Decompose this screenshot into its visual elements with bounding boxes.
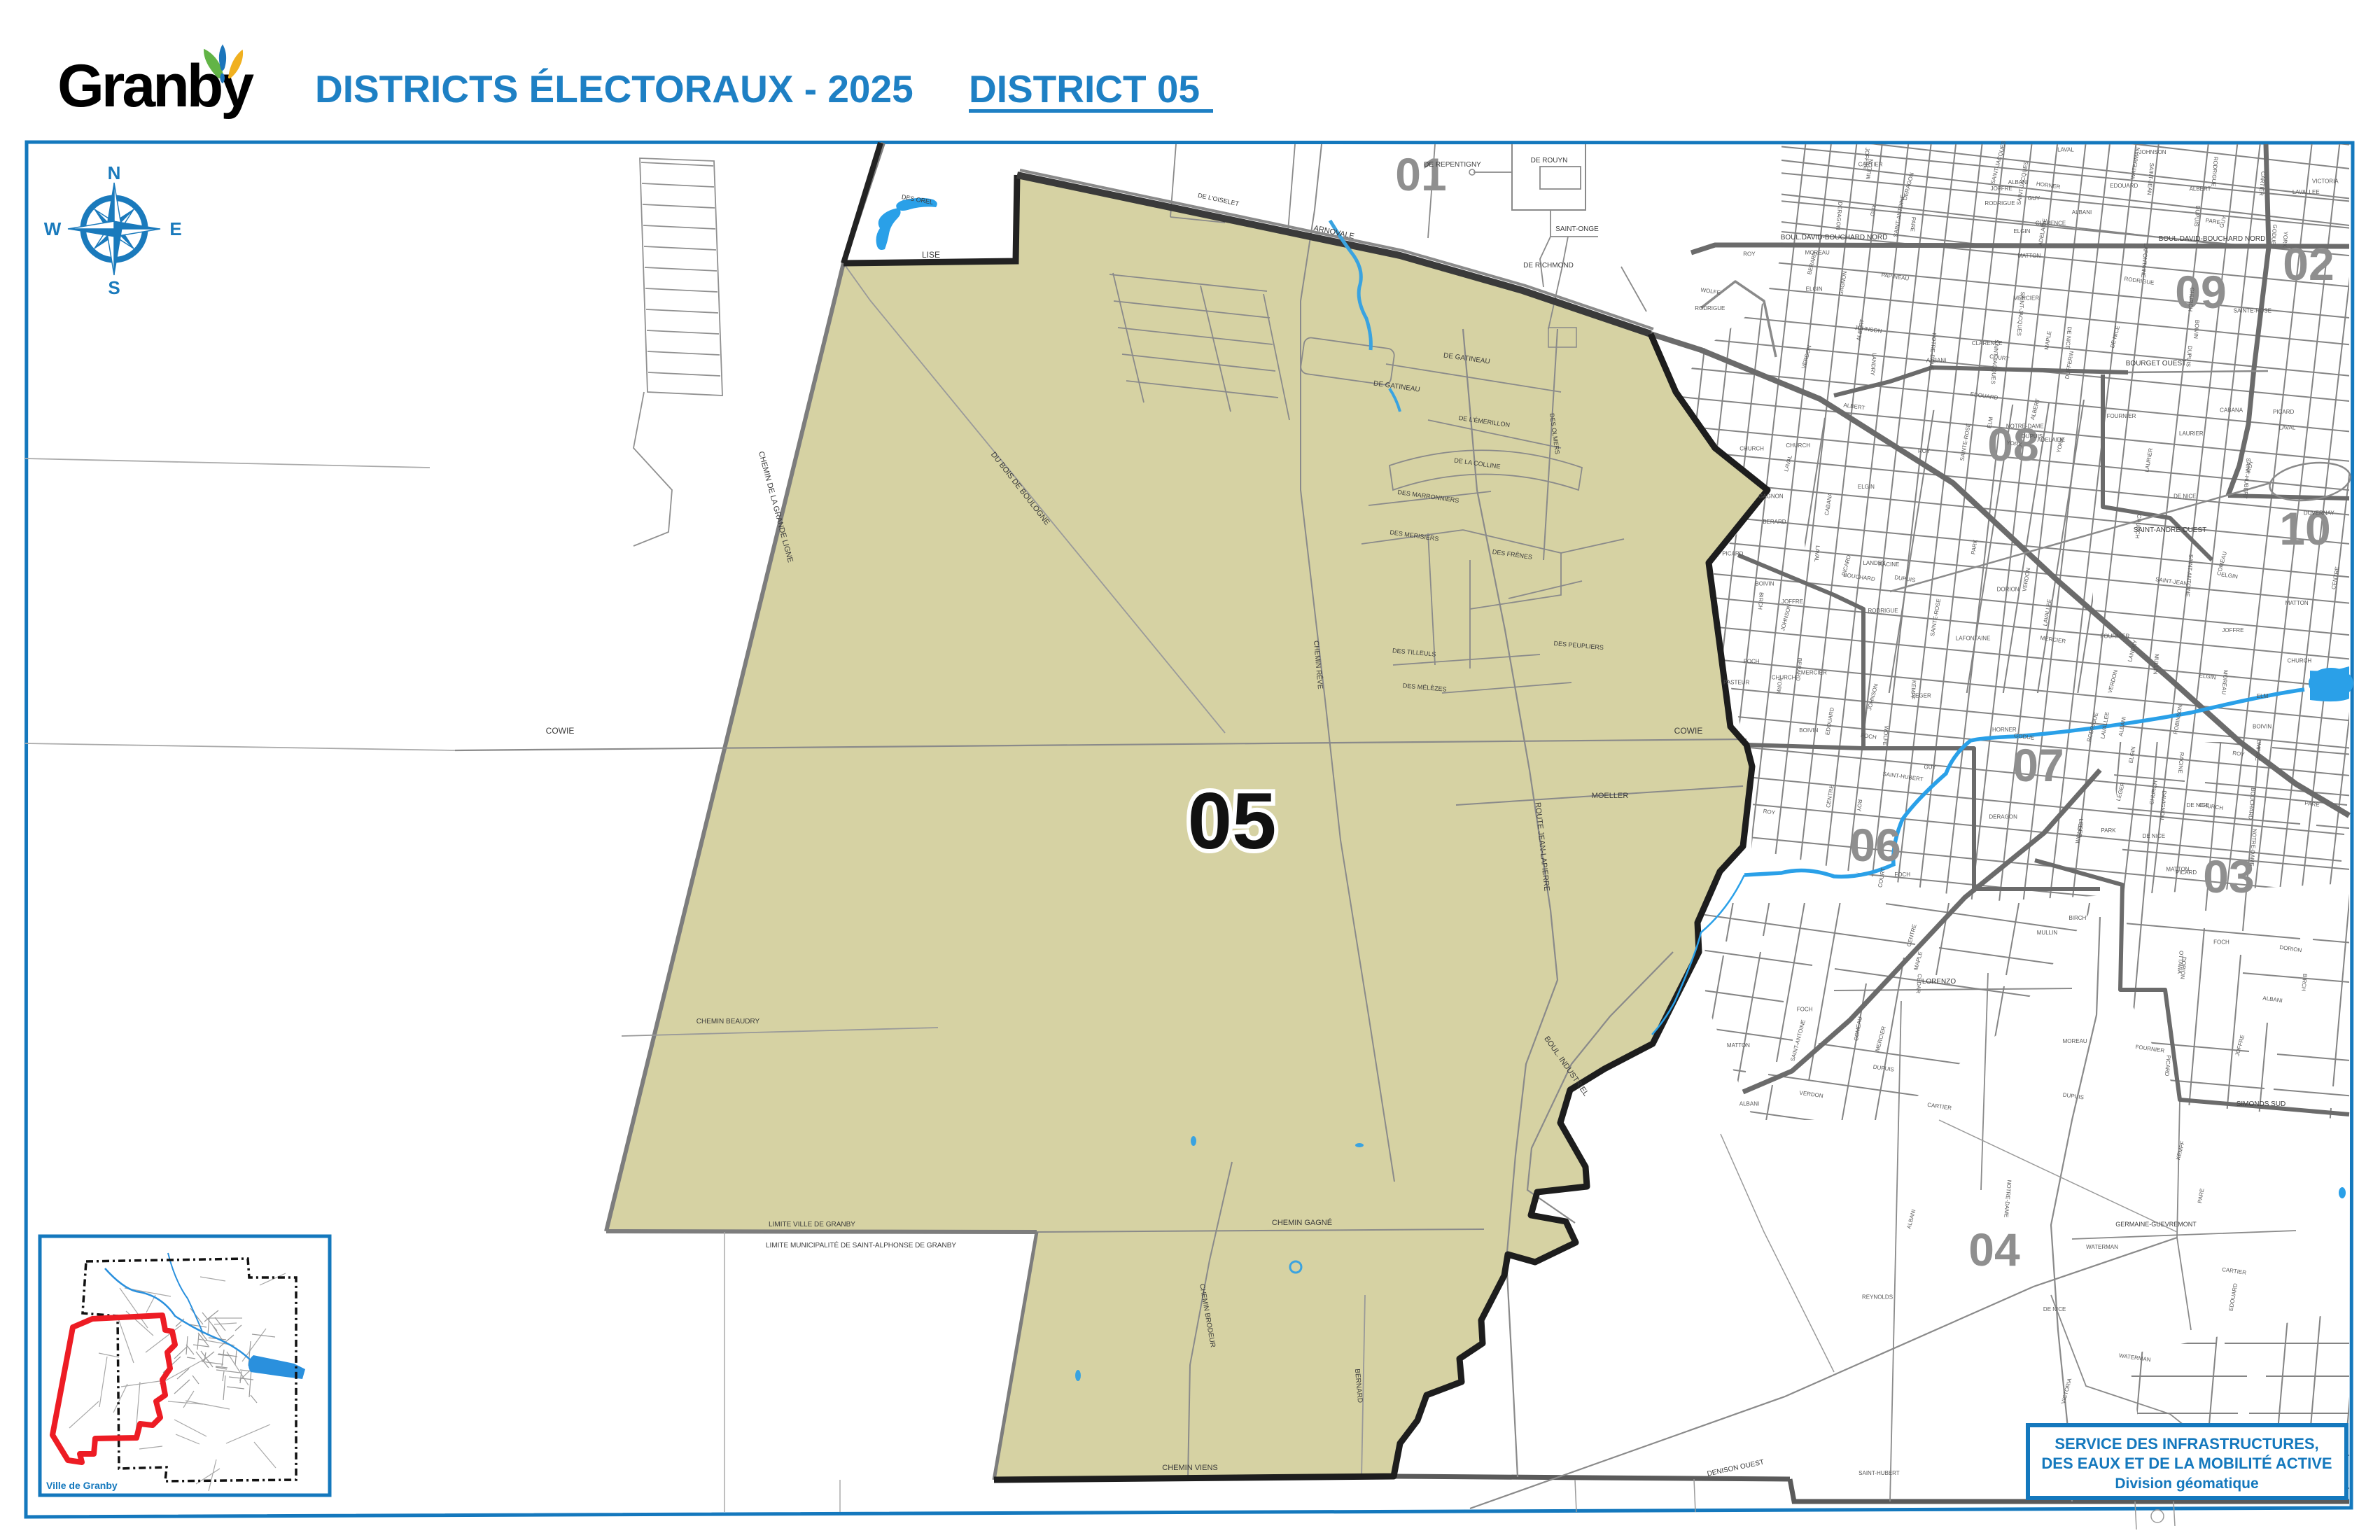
svg-text:PICARD: PICARD [2273,409,2294,415]
svg-text:ALBANI: ALBANI [2008,179,2028,185]
svg-text:SAINT-ANDRÉ OUEST: SAINT-ANDRÉ OUEST [2134,525,2206,534]
svg-text:RODRIGUE: RODRIGUE [1695,305,1725,311]
svg-text:PARE: PARE [1910,216,1917,232]
svg-text:MOELLER: MOELLER [1592,792,1629,800]
svg-text:LORENZO: LORENZO [1922,978,1956,986]
svg-text:RODRIGUE: RODRIGUE [1984,200,2015,206]
svg-text:MULLIN: MULLIN [2037,930,2058,936]
svg-text:MATTON: MATTON [2285,600,2309,606]
svg-text:CHURCH: CHURCH [2288,658,2312,664]
svg-text:BERARD: BERARD [1763,519,1786,525]
svg-text:COWIE: COWIE [1674,726,1703,736]
svg-text:PICARD: PICARD [2176,869,2197,876]
svg-text:NOTRE-DAME: NOTRE-DAME [2006,423,2044,430]
svg-text:BOIVIN: BOIVIN [1755,580,1774,587]
svg-text:CLARENCE: CLARENCE [1972,340,2003,346]
svg-text:W: W [44,218,62,239]
svg-text:MATTON: MATTON [2017,253,2040,259]
svg-text:DE NICE: DE NICE [2187,802,2209,808]
svg-text:WATERMAN: WATERMAN [2086,1244,2118,1250]
svg-text:S: S [108,277,120,298]
svg-text:CHURCH: CHURCH [1739,445,1764,451]
svg-text:FOURNIER: FOURNIER [2107,413,2136,419]
svg-text:09: 09 [2175,266,2226,318]
svg-text:PICARD: PICARD [1722,550,1743,556]
svg-text:SAINT-ONGE: SAINT-ONGE [1555,225,1599,233]
svg-text:04: 04 [1968,1224,2020,1275]
svg-text:LIMITE MUNICIPALITÉ DE SAINT-A: LIMITE MUNICIPALITÉ DE SAINT-ALPHONSE DE… [766,1240,956,1249]
svg-text:FOCH: FOCH [1894,871,1910,878]
svg-text:FOCH: FOCH [2213,939,2229,945]
svg-text:SAINT-HUBERT: SAINT-HUBERT [1858,1470,1900,1476]
svg-text:ELM: ELM [2257,693,2269,699]
svg-text:BIRCH: BIRCH [2068,915,2086,921]
svg-text:LISE: LISE [922,250,940,260]
svg-text:05: 05 [1188,777,1277,866]
svg-text:LAVAL: LAVAL [2279,425,2296,431]
svg-text:SIMONDS SUD: SIMONDS SUD [2236,1100,2286,1108]
svg-text:DISTRICT 05: DISTRICT 05 [969,67,1200,111]
svg-text:BOUL.DAVID-BOUCHARD NORD: BOUL.DAVID-BOUCHARD NORD [2159,235,2266,243]
svg-text:RODRIGUE: RODRIGUE [1868,608,1898,614]
svg-text:ALBANI: ALBANI [1739,1101,1759,1107]
svg-text:DE NICE: DE NICE [2043,1306,2066,1312]
svg-text:Division géomatique: Division géomatique [2115,1476,2258,1492]
svg-text:02: 02 [2283,238,2334,290]
svg-text:01: 01 [1395,148,1446,200]
svg-text:ELGIN: ELGIN [2013,228,2030,234]
svg-text:DUVERNAY: DUVERNAY [2304,510,2335,516]
svg-text:GUY: GUY [2028,195,2040,202]
svg-text:COWIE: COWIE [546,726,575,736]
svg-text:HORNER: HORNER [1992,727,2017,733]
svg-text:SERVICE DES INFRASTRUCTURES,: SERVICE DES INFRASTRUCTURES, [2054,1435,2318,1452]
svg-text:CLARENCE: CLARENCE [2036,220,2066,227]
svg-text:CHURCH: CHURCH [1786,442,1810,449]
svg-text:CHURCH: CHURCH [1772,674,1796,680]
svg-text:GUY: GUY [1924,764,1936,771]
svg-text:JOFFRE: JOFFRE [2222,627,2243,633]
svg-text:LAURIER: LAURIER [2179,430,2204,437]
svg-text:DORION: DORION [1997,587,2019,593]
svg-text:JOHNSON: JOHNSON [2138,149,2166,155]
svg-text:CHEMIN VIENS: CHEMIN VIENS [1162,1464,1217,1472]
svg-text:CABANA: CABANA [2220,407,2243,413]
svg-text:BOUL.DAVID-BOUCHARD NORD: BOUL.DAVID-BOUCHARD NORD [1781,234,1888,241]
svg-text:ROY: ROY [1743,251,1756,257]
svg-text:ALBANI: ALBANI [1926,357,1946,363]
svg-text:MERCIER: MERCIER [1801,669,1827,675]
svg-text:MERCIER: MERCIER [2013,295,2039,301]
svg-text:DE RICHMOND: DE RICHMOND [1523,262,1574,269]
svg-text:LAVALLEE: LAVALLEE [2292,189,2320,195]
svg-text:DE REPENTIGNY: DE REPENTIGNY [1424,161,1481,169]
svg-text:03: 03 [2203,850,2254,902]
svg-text:BOIVIN: BOIVIN [1799,727,1818,734]
svg-text:BOURGET OUEST: BOURGET OUEST [2126,360,2187,367]
svg-text:DE ROUYN: DE ROUYN [1531,157,1568,164]
svg-text:PARK: PARK [2101,827,2116,834]
svg-text:FOCH: FOCH [1744,658,1760,664]
svg-text:DERAGON: DERAGON [1989,813,2017,820]
svg-text:ROY: ROY [1856,799,1863,813]
svg-text:DES EAUX ET DE LA MOBILITÉ ACT: DES EAUX ET DE LA MOBILITÉ ACTIVE [2041,1455,2332,1472]
svg-text:BOIVIN: BOIVIN [2253,724,2271,730]
svg-text:LAVAL: LAVAL [2057,146,2074,153]
svg-text:06: 06 [1849,819,1900,871]
svg-text:JOFFRE: JOFFRE [1991,185,2012,192]
svg-text:CHEMIN GAGNÉ: CHEMIN GAGNÉ [1272,1218,1332,1227]
svg-text:N: N [108,162,121,183]
svg-text:E: E [169,218,181,239]
svg-text:LIMITE VILLE DE GRANBY: LIMITE VILLE DE GRANBY [769,1221,855,1228]
svg-text:Ville de Granby: Ville de Granby [46,1480,118,1491]
svg-text:GAGNON: GAGNON [1758,493,1784,500]
svg-text:LANDRY: LANDRY [1863,560,1886,566]
svg-text:ELGIN: ELGIN [1858,484,1875,490]
svg-text:EDOUARD: EDOUARD [2110,183,2138,189]
svg-text:ALBERT: ALBERT [2190,185,2211,192]
svg-text:ELGIN: ELGIN [1806,286,1823,293]
svg-text:FOURNIER: FOURNIER [2100,633,2129,640]
svg-text:SAINTE-ROSE: SAINTE-ROSE [2234,307,2271,314]
svg-text:07: 07 [2012,739,2064,791]
svg-text:MOREAU: MOREAU [2063,1038,2087,1044]
svg-text:JOFFRE: JOFFRE [1781,598,1803,605]
svg-text:ALBANI: ALBANI [2072,209,2092,216]
svg-text:PASTEUR: PASTEUR [1723,679,1749,685]
svg-text:MATTON: MATTON [1727,1042,1750,1049]
svg-text:GERMAINE-GUEVREMONT: GERMAINE-GUEVREMONT [2115,1221,2197,1228]
svg-text:LAFONTAINE: LAFONTAINE [1956,635,1991,641]
svg-text:DISTRICTS ÉLECTORAUX - 2025: DISTRICTS ÉLECTORAUX - 2025 [315,67,913,111]
svg-text:VICTORIA: VICTORIA [2312,178,2339,184]
svg-text:REYNOLDS: REYNOLDS [1862,1294,1893,1300]
svg-text:DE NICE: DE NICE [2173,493,2196,500]
svg-text:LEGER: LEGER [1912,692,1931,699]
svg-text:ROY: ROY [1918,448,1931,454]
svg-text:DE NICE: DE NICE [2143,833,2165,839]
svg-text:FOCH: FOCH [1797,1007,1813,1013]
svg-text:CHEMIN BEAUDRY: CHEMIN BEAUDRY [696,1018,760,1025]
